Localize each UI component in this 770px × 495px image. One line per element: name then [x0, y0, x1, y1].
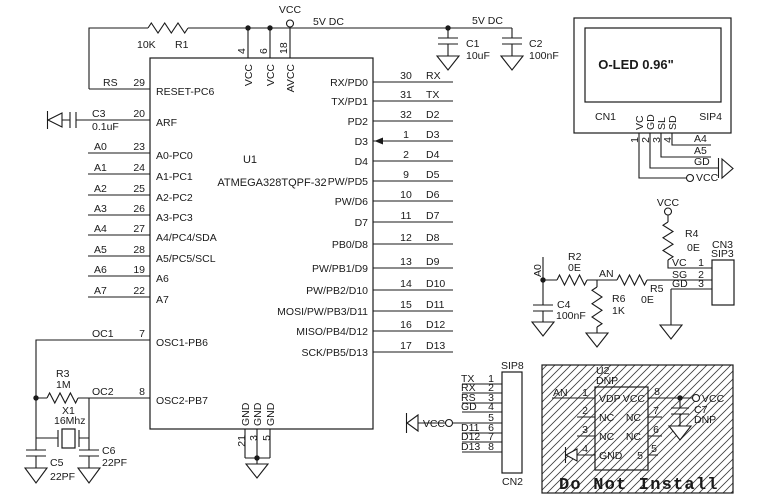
u2-pin-name: VCC — [623, 393, 646, 405]
r6-ref: R6 — [612, 293, 626, 305]
u1-pin-num: 1 — [403, 129, 409, 141]
u1-ref: U1 — [243, 154, 257, 166]
u1-pin-num: 25 — [133, 183, 145, 195]
r1-ref: R1 — [175, 39, 189, 51]
c3-ref: C3 — [92, 108, 106, 120]
resistor-r1 — [148, 23, 188, 33]
net-label: A2 — [94, 183, 107, 195]
cn2-left-arrow — [407, 415, 418, 431]
u1-pin-num: 6 — [258, 48, 270, 54]
u1-pin-num: 24 — [133, 162, 145, 174]
u1-pin-name: MOSI/PW/PB3/D11 — [277, 306, 368, 318]
vcc-terminal-oled — [687, 175, 694, 182]
u1-pin-name: RESET-PC6 — [156, 86, 215, 98]
c2-ref: C2 — [529, 38, 543, 50]
u2-dnp: DNP — [596, 375, 618, 387]
u1-pin-name: PW/PD5 — [328, 176, 368, 188]
net-label: D9 — [426, 256, 440, 268]
u1-pin-num: 9 — [403, 169, 409, 181]
net-label: A0 — [94, 141, 107, 153]
net-label: A5 — [94, 244, 107, 256]
u1-pin-num: 4 — [236, 48, 248, 54]
cn3-pin-num: 1 — [698, 257, 704, 269]
d3-pin-arrow — [375, 138, 384, 145]
net-label: RX — [426, 70, 441, 82]
net-label: A6 — [94, 264, 107, 276]
u1-pin-name: A2-PC2 — [156, 192, 193, 204]
u2-pin-name: VDP — [599, 393, 621, 405]
u1-pin-num: 13 — [400, 256, 412, 268]
u1-pin-name: A7 — [156, 294, 169, 306]
vcc-terminal-u2 — [693, 395, 700, 402]
u1-pin-name: A1-PC1 — [156, 171, 193, 183]
u1-pin-name: TX/PD1 — [331, 96, 368, 108]
c1-value: 10uF — [466, 50, 490, 62]
net-label: D2 — [426, 109, 440, 121]
u1-pin-name: AVCC — [285, 64, 297, 93]
cn2-type: SIP8 — [501, 360, 524, 372]
u1-part: ATMEGA328TQPF-32 — [217, 177, 326, 189]
net-label: D11 — [426, 299, 445, 311]
net-label: D7 — [426, 210, 440, 222]
rail-label: 5V DC — [313, 16, 344, 28]
net-label: A1 — [94, 162, 107, 174]
resistor-r2 — [557, 275, 587, 285]
u1-pin-name: D4 — [355, 156, 369, 168]
u1-pin-name: OSC1-PB6 — [156, 337, 208, 349]
r2-value: 0E — [568, 262, 581, 274]
net-label: D13 — [461, 441, 480, 453]
u1-pin-num: 18 — [278, 42, 290, 54]
r5-value: 0E — [641, 294, 654, 306]
u1-pin-num: 29 — [133, 77, 145, 89]
cn2-ref: CN2 — [502, 476, 523, 488]
aref-left-arrow — [48, 113, 62, 127]
u2-pin-num: 3 — [582, 424, 588, 436]
u1-pin-num: 8 — [139, 386, 145, 398]
net-label: D13 — [426, 340, 445, 352]
u1-pin-name: A4/PC4/SDA — [156, 232, 217, 244]
net-label: D5 — [426, 169, 440, 181]
net-label: A4 — [94, 223, 107, 235]
u1-pin-num: 21 — [236, 435, 248, 447]
u1-pin-num: 12 — [400, 232, 412, 244]
u1-pin-num: 3 — [248, 435, 260, 441]
u1-pin-num: 16 — [400, 319, 412, 331]
net-label: RS — [103, 77, 118, 89]
resistor-r3 — [47, 393, 78, 403]
u1-pin-name: PW/PB1/D9 — [312, 263, 368, 275]
u1-pin-name: PD2 — [348, 116, 369, 128]
r1-value: 10K — [137, 39, 156, 51]
u1-pin-name: D7 — [355, 217, 369, 229]
u2-pin-num: 2 — [582, 405, 588, 417]
u1-pin-name: ARF — [156, 117, 177, 129]
u1-pin-name: A6 — [156, 273, 169, 285]
oled-title: O-LED 0.96" — [598, 57, 674, 72]
net-label: A7 — [94, 285, 107, 297]
c4-value: 100nF — [556, 310, 586, 322]
u1-pin-name: D3 — [355, 136, 369, 148]
net-label: GD — [461, 401, 477, 413]
u2-pin-num: 8 — [654, 386, 660, 398]
r3-value: 1M — [56, 379, 71, 391]
x1-value: 16Mhz — [54, 415, 86, 427]
u1-pin-num: 7 — [139, 328, 145, 340]
cn3-body — [712, 260, 734, 305]
u1-pin-num: 26 — [133, 203, 145, 215]
net-label: OC1 — [92, 328, 114, 340]
u1-pin-name: PW/PB2/D10 — [306, 285, 368, 297]
u1-pin-name: A5/PC5/SCL — [156, 253, 216, 265]
schematic-canvas: U1 ATMEGA328TQPF-32 4 6 18 VCC VCC AVCC … — [0, 0, 770, 495]
vcc-label: VCC — [279, 4, 302, 16]
u1-pin-name: VCC — [243, 64, 255, 87]
u1-pin-name: MISO/PB4/D12 — [296, 326, 368, 338]
u1-pin-num: 20 — [133, 108, 145, 120]
vcc-label: VCC — [657, 197, 680, 209]
net-label: A0 — [532, 264, 544, 277]
cn3-pin-name: VC — [672, 257, 687, 269]
u1-pin-name: VCC — [265, 64, 277, 87]
u2-pin-name: NC — [626, 412, 642, 424]
oled-pin-name: SD — [667, 115, 679, 130]
u2-pin-name: NC — [599, 431, 615, 443]
crystal-x1-body — [62, 429, 75, 448]
u1-pin-num: 31 — [400, 89, 412, 101]
c5-ref: C5 — [50, 457, 64, 469]
vcc-terminal-top — [287, 20, 294, 27]
cn3-pin-num: 3 — [698, 278, 704, 290]
u1-pin-name: SCK/PB5/D13 — [301, 347, 368, 359]
resistor-r4 — [663, 222, 673, 260]
u1-pin-name: PB0/D8 — [332, 239, 368, 251]
u1-pin-name: A3-PC3 — [156, 212, 193, 224]
cn3-pin-name: GD — [672, 278, 688, 290]
u1-pin-name: RX/PD0 — [330, 77, 368, 89]
u1-pin-num: 14 — [400, 278, 412, 290]
c2-value: 100nF — [529, 50, 559, 62]
c6-ref: C6 — [102, 445, 116, 457]
net-label: AN — [599, 268, 614, 280]
u1-pin-num: 27 — [133, 223, 145, 235]
u2-pin-num: 6 — [653, 424, 659, 436]
u1-pin-name: OSC2-PB7 — [156, 395, 208, 407]
oled-type: SIP4 — [699, 111, 722, 123]
r4-value: 0E — [687, 242, 700, 254]
net-label: A4 — [694, 133, 707, 145]
net-label: D6 — [426, 189, 440, 201]
u1-pin-num: 30 — [400, 70, 412, 82]
u1-pin-num: 19 — [133, 264, 145, 276]
u2-pin-name: GND — [599, 450, 623, 462]
cn2-body — [502, 372, 522, 473]
u2-pin-num: 1 — [582, 387, 588, 399]
resistor-r6 — [592, 287, 602, 327]
u1-pin-name: GND — [252, 402, 264, 426]
net-label: VCC — [696, 172, 719, 184]
net-label: GD — [694, 156, 710, 168]
net-label: TX — [426, 89, 439, 101]
net-label: D8 — [426, 232, 440, 244]
net-label: A3 — [94, 203, 107, 215]
c1-ref: C1 — [466, 38, 480, 50]
net-label: D4 — [426, 149, 440, 161]
u1-pin-name: GND — [240, 402, 252, 426]
c6-value: 22PF — [102, 457, 127, 469]
do-not-install-region — [542, 365, 733, 493]
u1-pin-num: 28 — [133, 244, 145, 256]
c3-value: 0.1uF — [92, 121, 119, 133]
u1-pin-name: GND — [265, 402, 277, 426]
vcc-terminal-cn2 — [446, 420, 453, 427]
u1-pin-num: 15 — [400, 299, 412, 311]
u1-pin-num: 5 — [261, 435, 273, 441]
r4-ref: R4 — [685, 228, 699, 240]
u1-pin-num: 10 — [400, 189, 412, 201]
u1-pin-name: PW/D6 — [335, 196, 368, 208]
oled-ref: CN1 — [595, 111, 616, 123]
u2-pin-name: NC — [626, 431, 642, 443]
cn2-pin-num: 8 — [488, 441, 494, 453]
oled-gd-right-arrow — [722, 159, 733, 178]
do-not-install-note: Do Not Install — [559, 476, 719, 495]
u1-pin-name: A0-PC0 — [156, 150, 193, 162]
r6-value: 1K — [612, 305, 625, 317]
u1-pin-num: 32 — [400, 109, 412, 121]
u1-pin-num: 2 — [403, 149, 409, 161]
u2-pin-name: 5 — [637, 450, 643, 462]
right-pin-wires — [373, 82, 453, 352]
u2-pin-num: 4 — [582, 443, 588, 455]
u2-pin-num: 7 — [653, 405, 659, 417]
resistor-r5 — [617, 275, 647, 285]
net-label: AN — [553, 387, 568, 399]
schematic-page: U1 ATMEGA328TQPF-32 4 6 18 VCC VCC AVCC … — [0, 0, 770, 495]
u1-pin-num: 17 — [400, 340, 412, 352]
net-label: VCC — [423, 418, 446, 430]
u1-pin-num: 11 — [401, 210, 412, 222]
cn3-type: SIP3 — [711, 248, 734, 260]
net-label: D10 — [426, 278, 445, 290]
vcc-terminal-cn3 — [665, 208, 672, 215]
u2-pin-name: NC — [599, 412, 615, 424]
net-label: OC2 — [92, 386, 114, 398]
rail-label: 5V DC — [472, 15, 503, 27]
net-label: D3 — [426, 129, 440, 141]
c7-value: DNP — [694, 414, 716, 426]
c5-value: 22PF — [50, 471, 75, 483]
u1-pin-num: 22 — [133, 285, 145, 297]
u1-pin-num: 23 — [133, 141, 145, 153]
net-label: D12 — [426, 319, 445, 331]
u2-pin-num: 5 — [651, 443, 657, 455]
oled-pin-num: 4 — [662, 137, 674, 143]
